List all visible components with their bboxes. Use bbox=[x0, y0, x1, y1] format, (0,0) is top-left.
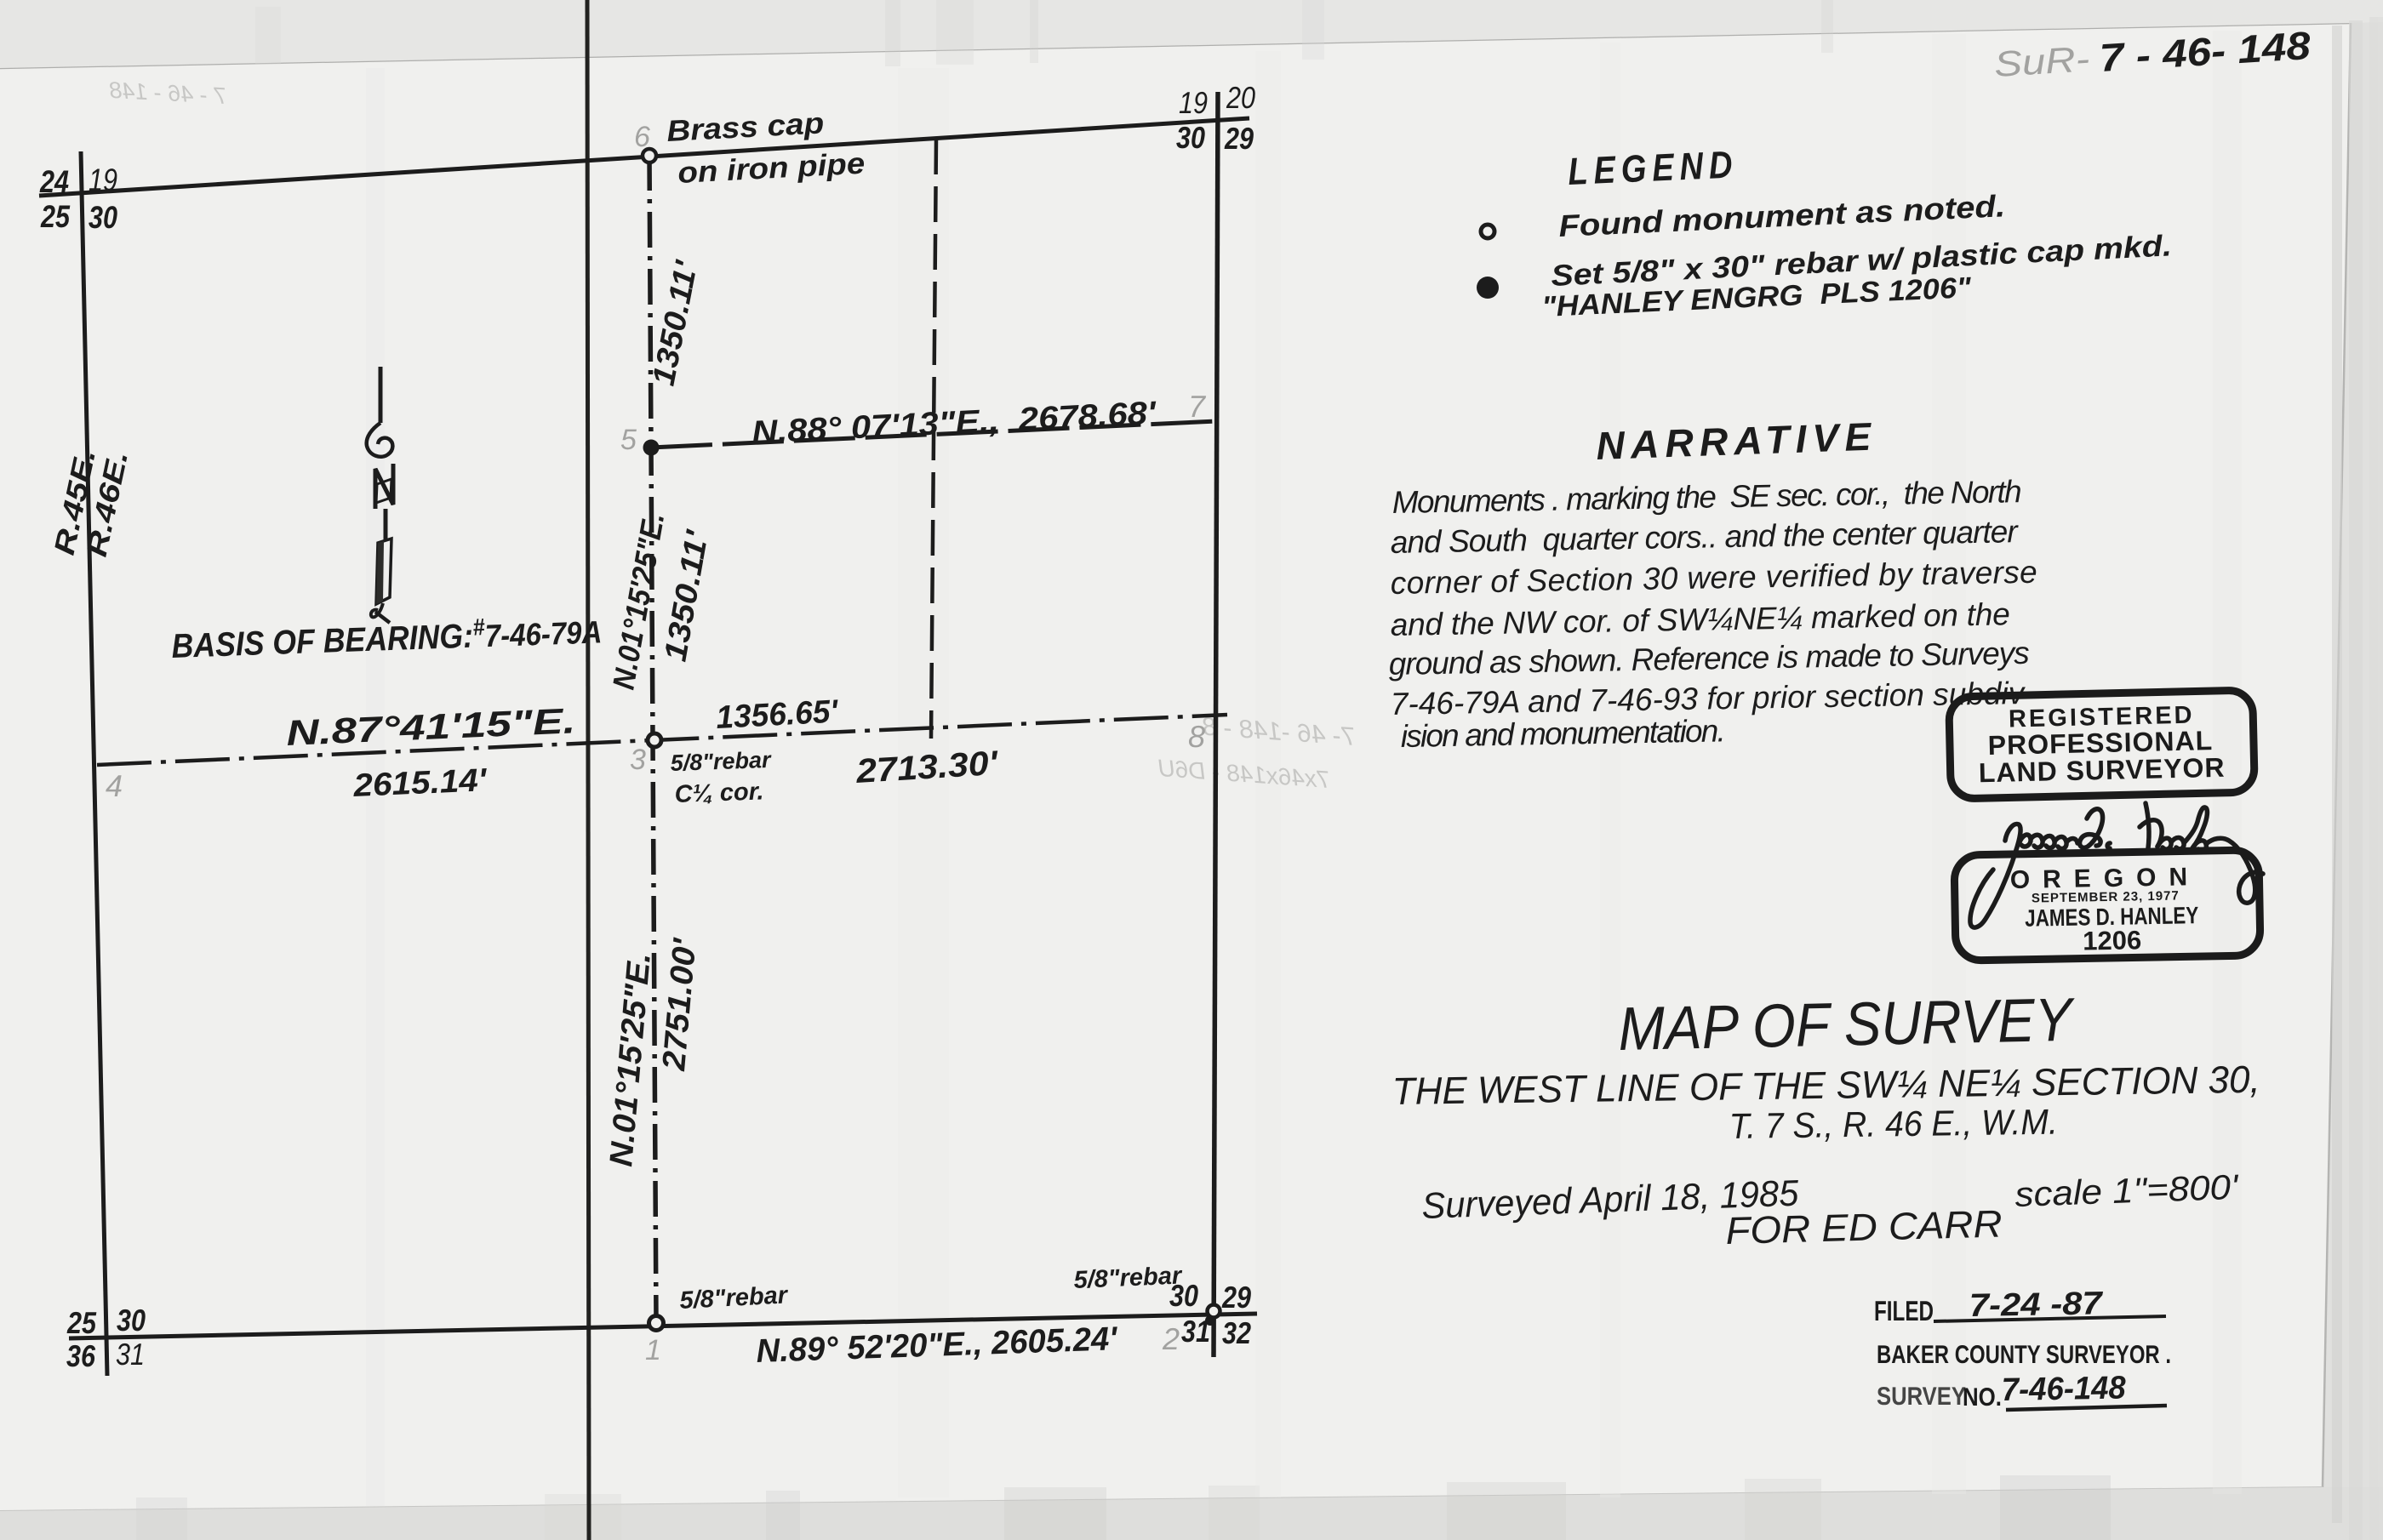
svg-text:1: 1 bbox=[645, 1334, 661, 1366]
svg-text:NO.: NO. bbox=[1963, 1383, 2002, 1412]
svg-text:29: 29 bbox=[1224, 121, 1254, 156]
svg-text:6: 6 bbox=[634, 121, 650, 153]
svg-text:4: 4 bbox=[106, 768, 123, 803]
svg-text:3: 3 bbox=[630, 744, 646, 776]
svg-text:T. 7 S., R. 46 E., W.M.: T. 7 S., R. 46 E., W.M. bbox=[1729, 1102, 2058, 1146]
svg-text:ision and monumentation.: ision and monumentation. bbox=[1400, 713, 1726, 754]
svg-text:36: 36 bbox=[66, 1338, 96, 1373]
svg-text:FILED: FILED bbox=[1874, 1295, 1934, 1326]
svg-text:BAKER COUNTY SURVEYOR .: BAKER COUNTY SURVEYOR . bbox=[1877, 1341, 2171, 1369]
svg-text:30: 30 bbox=[117, 1303, 146, 1338]
svg-text:19: 19 bbox=[1179, 85, 1208, 120]
svg-text:5/8"rebar: 5/8"rebar bbox=[1073, 1262, 1184, 1294]
svg-text:30: 30 bbox=[89, 200, 117, 235]
svg-text:MAP OF SURVEY: MAP OF SURVEY bbox=[1618, 986, 2077, 1064]
svg-text:2: 2 bbox=[1162, 1321, 1180, 1356]
svg-text:19: 19 bbox=[89, 163, 117, 197]
svg-text:5/8"rebar: 5/8"rebar bbox=[670, 747, 772, 776]
svg-text:8: 8 bbox=[1188, 719, 1205, 754]
svg-text:7: 7 bbox=[1188, 389, 1207, 424]
svg-text:5: 5 bbox=[620, 424, 637, 456]
svg-text:32: 32 bbox=[1222, 1315, 1251, 1350]
svg-text:scale 1"=800': scale 1"=800' bbox=[2014, 1167, 2240, 1214]
svg-text:29: 29 bbox=[1221, 1280, 1251, 1315]
svg-text:5/8"rebar: 5/8"rebar bbox=[679, 1281, 790, 1315]
svg-text:31: 31 bbox=[1181, 1314, 1210, 1349]
svg-text:7-46-148: 7-46-148 bbox=[2001, 1370, 2127, 1408]
svg-text:LAND SURVEYOR: LAND SURVEYOR bbox=[1978, 752, 2226, 789]
svg-text:25: 25 bbox=[40, 199, 71, 234]
svg-text:1206: 1206 bbox=[2083, 925, 2142, 955]
svg-text:31: 31 bbox=[116, 1337, 145, 1372]
svg-text:30: 30 bbox=[1176, 120, 1205, 155]
svg-text:C¼ cor.: C¼ cor. bbox=[674, 778, 764, 808]
svg-text:SURVEY: SURVEY bbox=[1877, 1383, 1966, 1411]
svg-text:25: 25 bbox=[66, 1305, 97, 1340]
svg-text:20: 20 bbox=[1226, 80, 1255, 115]
svg-text:FOR ED CARR: FOR ED CARR bbox=[1725, 1202, 2003, 1252]
svg-text:2615.14': 2615.14' bbox=[351, 762, 489, 804]
svg-text:24: 24 bbox=[39, 164, 69, 199]
svg-text:1356.65': 1356.65' bbox=[715, 693, 840, 736]
svg-text:LEGEND: LEGEND bbox=[1567, 142, 1739, 193]
svg-text:SuR-: SuR- bbox=[1993, 38, 2091, 84]
